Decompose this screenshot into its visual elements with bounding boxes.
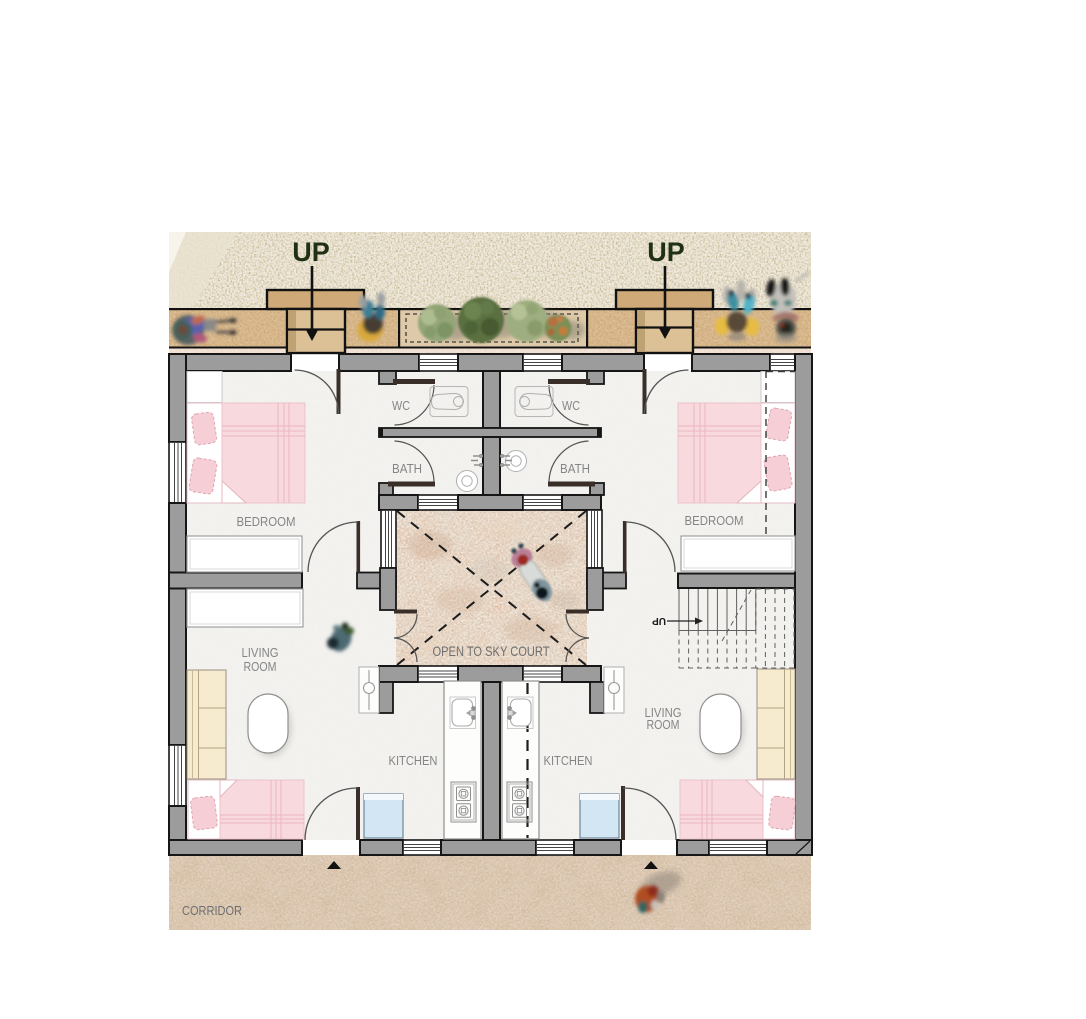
svg-text:WC: WC <box>392 398 410 413</box>
svg-text:CORRIDOR: CORRIDOR <box>182 904 242 918</box>
svg-text:UP: UP <box>652 615 666 626</box>
svg-text:ROOM: ROOM <box>647 717 680 732</box>
svg-text:KITCHEN: KITCHEN <box>389 753 438 768</box>
svg-text:ROOM: ROOM <box>244 659 277 674</box>
svg-text:UP: UP <box>292 237 330 267</box>
svg-text:KITCHEN: KITCHEN <box>544 753 593 768</box>
svg-text:UP: UP <box>647 237 685 267</box>
svg-text:BATH: BATH <box>392 461 422 476</box>
svg-text:BEDROOM: BEDROOM <box>685 513 744 528</box>
svg-text:BATH: BATH <box>560 461 590 476</box>
svg-text:LIVING: LIVING <box>242 645 279 660</box>
svg-text:BEDROOM: BEDROOM <box>237 514 296 529</box>
svg-text:WC: WC <box>562 398 580 413</box>
svg-text:OPEN TO SKY COURT: OPEN TO SKY COURT <box>433 643 550 659</box>
